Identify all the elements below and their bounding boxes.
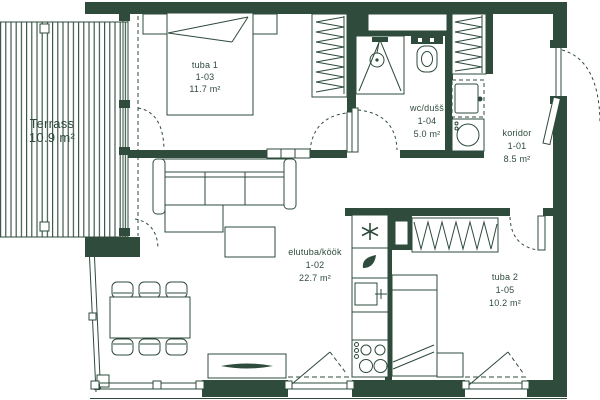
label-elutuba-code: 1-02 — [306, 260, 325, 270]
label-tuba1-name: tuba 1 — [192, 60, 218, 70]
kitchen — [352, 215, 388, 377]
sink-icon — [452, 80, 484, 117]
chair-icon — [166, 282, 187, 298]
wardrobe-icon — [312, 14, 347, 97]
terrace-post — [40, 222, 49, 231]
sliding-panel — [267, 149, 310, 158]
dining-table-icon — [110, 282, 190, 355]
wc-door — [352, 108, 397, 152]
label-tuba1-code: 1-03 — [196, 72, 215, 82]
label-tuba2-name: tuba 2 — [492, 272, 518, 282]
label-koridor-area: 8.5 m² — [504, 154, 531, 164]
window-living-b — [285, 352, 354, 389]
washing-machine-icon — [452, 119, 484, 151]
nightstand-icon — [253, 14, 277, 34]
nightstand-icon — [437, 353, 463, 377]
plan-svg: Terrass 10.9 m² tuba 1 1-03 11.7 m² wc/d… — [0, 0, 600, 400]
wardrobe-icon — [412, 218, 498, 252]
door-swing-icon — [358, 110, 397, 150]
label-tuba2-area: 10.2 m² — [489, 298, 521, 308]
furniture-tuba1 — [143, 13, 347, 115]
shower-icon — [356, 36, 404, 94]
chair-icon — [139, 339, 160, 355]
door-swing-icon — [562, 50, 600, 122]
label-elutuba-name: elutuba/köök — [288, 247, 342, 257]
terrace-post — [40, 24, 49, 33]
label-wc-area: 5.0 m² — [414, 129, 441, 139]
chair-icon — [139, 282, 160, 298]
label-koridor-name: koridor — [503, 128, 532, 138]
label-wc-code: 1-04 — [418, 116, 437, 126]
window-tilt-icon — [292, 352, 330, 384]
chair-icon — [166, 339, 187, 355]
sideboard-icon — [208, 354, 286, 378]
window-tuba2 — [462, 352, 529, 389]
floor-plan: Terrass 10.9 m² tuba 1 1-03 11.7 m² wc/d… — [0, 0, 600, 400]
chair-icon — [112, 282, 133, 298]
shaft-inset — [395, 221, 408, 245]
label-wc-name: wc/dušš — [409, 103, 444, 113]
door-leaf — [352, 108, 358, 152]
door-hinge-block — [550, 40, 567, 48]
label-tuba2-code: 1-05 — [496, 285, 515, 295]
sofa-icon — [153, 159, 296, 232]
bed-icon — [392, 275, 437, 376]
label-koridor-code: 1-01 — [508, 141, 527, 151]
terrace-door-swing-tuba1 — [138, 108, 164, 149]
chair-icon — [112, 339, 133, 355]
door-swing-icon — [510, 217, 538, 250]
entrance-door — [543, 47, 600, 145]
label-terrass-name: Terrass — [30, 116, 75, 131]
coffee-table-icon — [225, 227, 275, 257]
tuba2-door — [510, 216, 545, 250]
hall-wardrobe-icon — [452, 14, 486, 74]
window-tilt-icon — [469, 352, 508, 385]
door-leaf — [538, 216, 545, 250]
toilet-icon — [411, 36, 443, 72]
label-tuba1-area: 11.7 m² — [189, 84, 220, 94]
tuba1-door — [310, 112, 354, 152]
nightstand-icon — [143, 14, 167, 34]
label-elutuba-area: 22.7 m² — [299, 273, 331, 283]
label-terrass-area: 10.9 m² — [29, 130, 76, 145]
wall-recess — [368, 14, 447, 31]
door-swing-icon — [310, 113, 347, 151]
